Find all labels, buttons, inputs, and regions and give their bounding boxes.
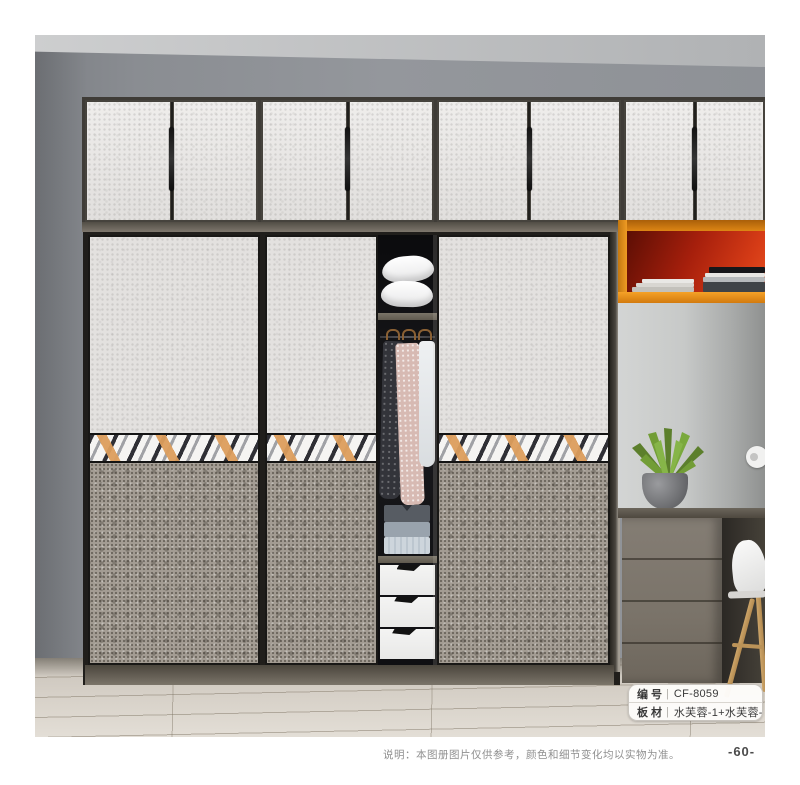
material-value: 水芙蓉-1+水芙蓉-3 xyxy=(674,704,763,720)
badge-separator: | xyxy=(666,688,669,700)
drawer-seam xyxy=(622,642,722,644)
cabinet-door xyxy=(531,102,619,220)
cabinet-handle xyxy=(527,127,532,191)
catalog-page: 编号 | CF-8059 板材 | 水芙蓉-1+水芙蓉-3 说明：本图册图片仅供… xyxy=(0,0,800,785)
cabinet-door xyxy=(626,102,693,220)
niche-frame xyxy=(618,220,627,303)
drawer-handle-notch xyxy=(394,597,418,603)
cabinet-handle xyxy=(169,127,174,191)
cabinet-door xyxy=(174,102,257,220)
sliding-door-middle xyxy=(265,235,378,665)
door-lower-panel xyxy=(90,463,258,663)
cabinet-handle xyxy=(345,127,350,191)
folded-shirt xyxy=(384,537,430,554)
interior-drawer xyxy=(380,565,435,595)
drawer-seam xyxy=(622,600,722,602)
product-badge: 编号 | CF-8059 板材 | 水芙蓉-1+水芙蓉-3 xyxy=(628,684,763,721)
badge-separator: | xyxy=(666,706,669,718)
cabinet-door xyxy=(697,102,764,220)
drawer-handle-notch xyxy=(392,629,416,635)
hanger xyxy=(402,329,416,340)
badge-row-material: 板材 | 水芙蓉-1+水芙蓉-3 xyxy=(629,702,762,720)
cabinet-door xyxy=(87,102,170,220)
deco-strip xyxy=(439,433,608,463)
interior-shelf xyxy=(378,313,437,320)
drawer-handle-notch xyxy=(397,565,421,571)
open-bay xyxy=(378,235,437,665)
drawer-seam xyxy=(622,558,722,560)
door-upper-panel xyxy=(90,237,258,433)
disclaimer-text: 说明：本图册图片仅供参考，颜色和细节变化均以实物为准。 xyxy=(383,747,680,762)
upper-cabinet-pair xyxy=(85,100,258,222)
sliding-door-left xyxy=(88,235,260,665)
hanging-garment-white xyxy=(419,341,435,467)
chair-back xyxy=(729,538,765,595)
deco-strip xyxy=(90,433,258,463)
book-stack xyxy=(632,279,694,292)
cabinet-handle xyxy=(692,127,697,191)
niche-frame xyxy=(627,220,765,231)
interior-drawer xyxy=(380,629,435,659)
folded-shirt xyxy=(384,522,430,537)
door-lower-panel xyxy=(439,463,608,663)
deco-strip xyxy=(267,433,376,463)
wardrobe-plinth xyxy=(85,665,614,685)
upper-cabinet-pair xyxy=(261,100,434,222)
interior-shelf xyxy=(378,556,437,563)
cabinet-door xyxy=(263,102,346,220)
wardrobe xyxy=(83,232,620,685)
upper-cabinet-pair xyxy=(437,100,621,222)
book-stack xyxy=(703,267,765,292)
pillow xyxy=(381,281,433,308)
niche-frame xyxy=(618,292,765,303)
interior-drawer xyxy=(380,597,435,627)
room-scene xyxy=(35,35,765,737)
material-label: 板材 xyxy=(637,704,665,720)
upper-cabinet-row xyxy=(82,97,765,232)
desk-top xyxy=(618,508,765,518)
door-upper-panel xyxy=(267,237,376,433)
pillow xyxy=(381,254,435,284)
sliding-door-right xyxy=(437,235,610,665)
cabinet-door xyxy=(350,102,433,220)
upper-cabinet-pair xyxy=(624,100,765,222)
product-code-value: CF-8059 xyxy=(674,688,719,700)
cabinet-frame-band xyxy=(82,222,620,232)
wall-outlet xyxy=(746,446,765,468)
book xyxy=(703,282,765,292)
door-upper-panel xyxy=(439,237,608,433)
desk-nook xyxy=(618,220,765,683)
interior-drawer-stack xyxy=(380,565,435,661)
door-lower-panel xyxy=(267,463,376,663)
product-code-label: 编号 xyxy=(637,686,665,702)
page-number: -60- xyxy=(728,744,778,759)
cabinet-door xyxy=(439,102,527,220)
hanger xyxy=(418,329,432,340)
chair-seat xyxy=(728,590,765,598)
desk-drawer-unit xyxy=(622,518,722,683)
folded-shirt xyxy=(384,505,430,522)
display-niche xyxy=(618,220,765,303)
badge-row-code: 编号 | CF-8059 xyxy=(629,685,762,702)
hanger xyxy=(386,329,400,340)
